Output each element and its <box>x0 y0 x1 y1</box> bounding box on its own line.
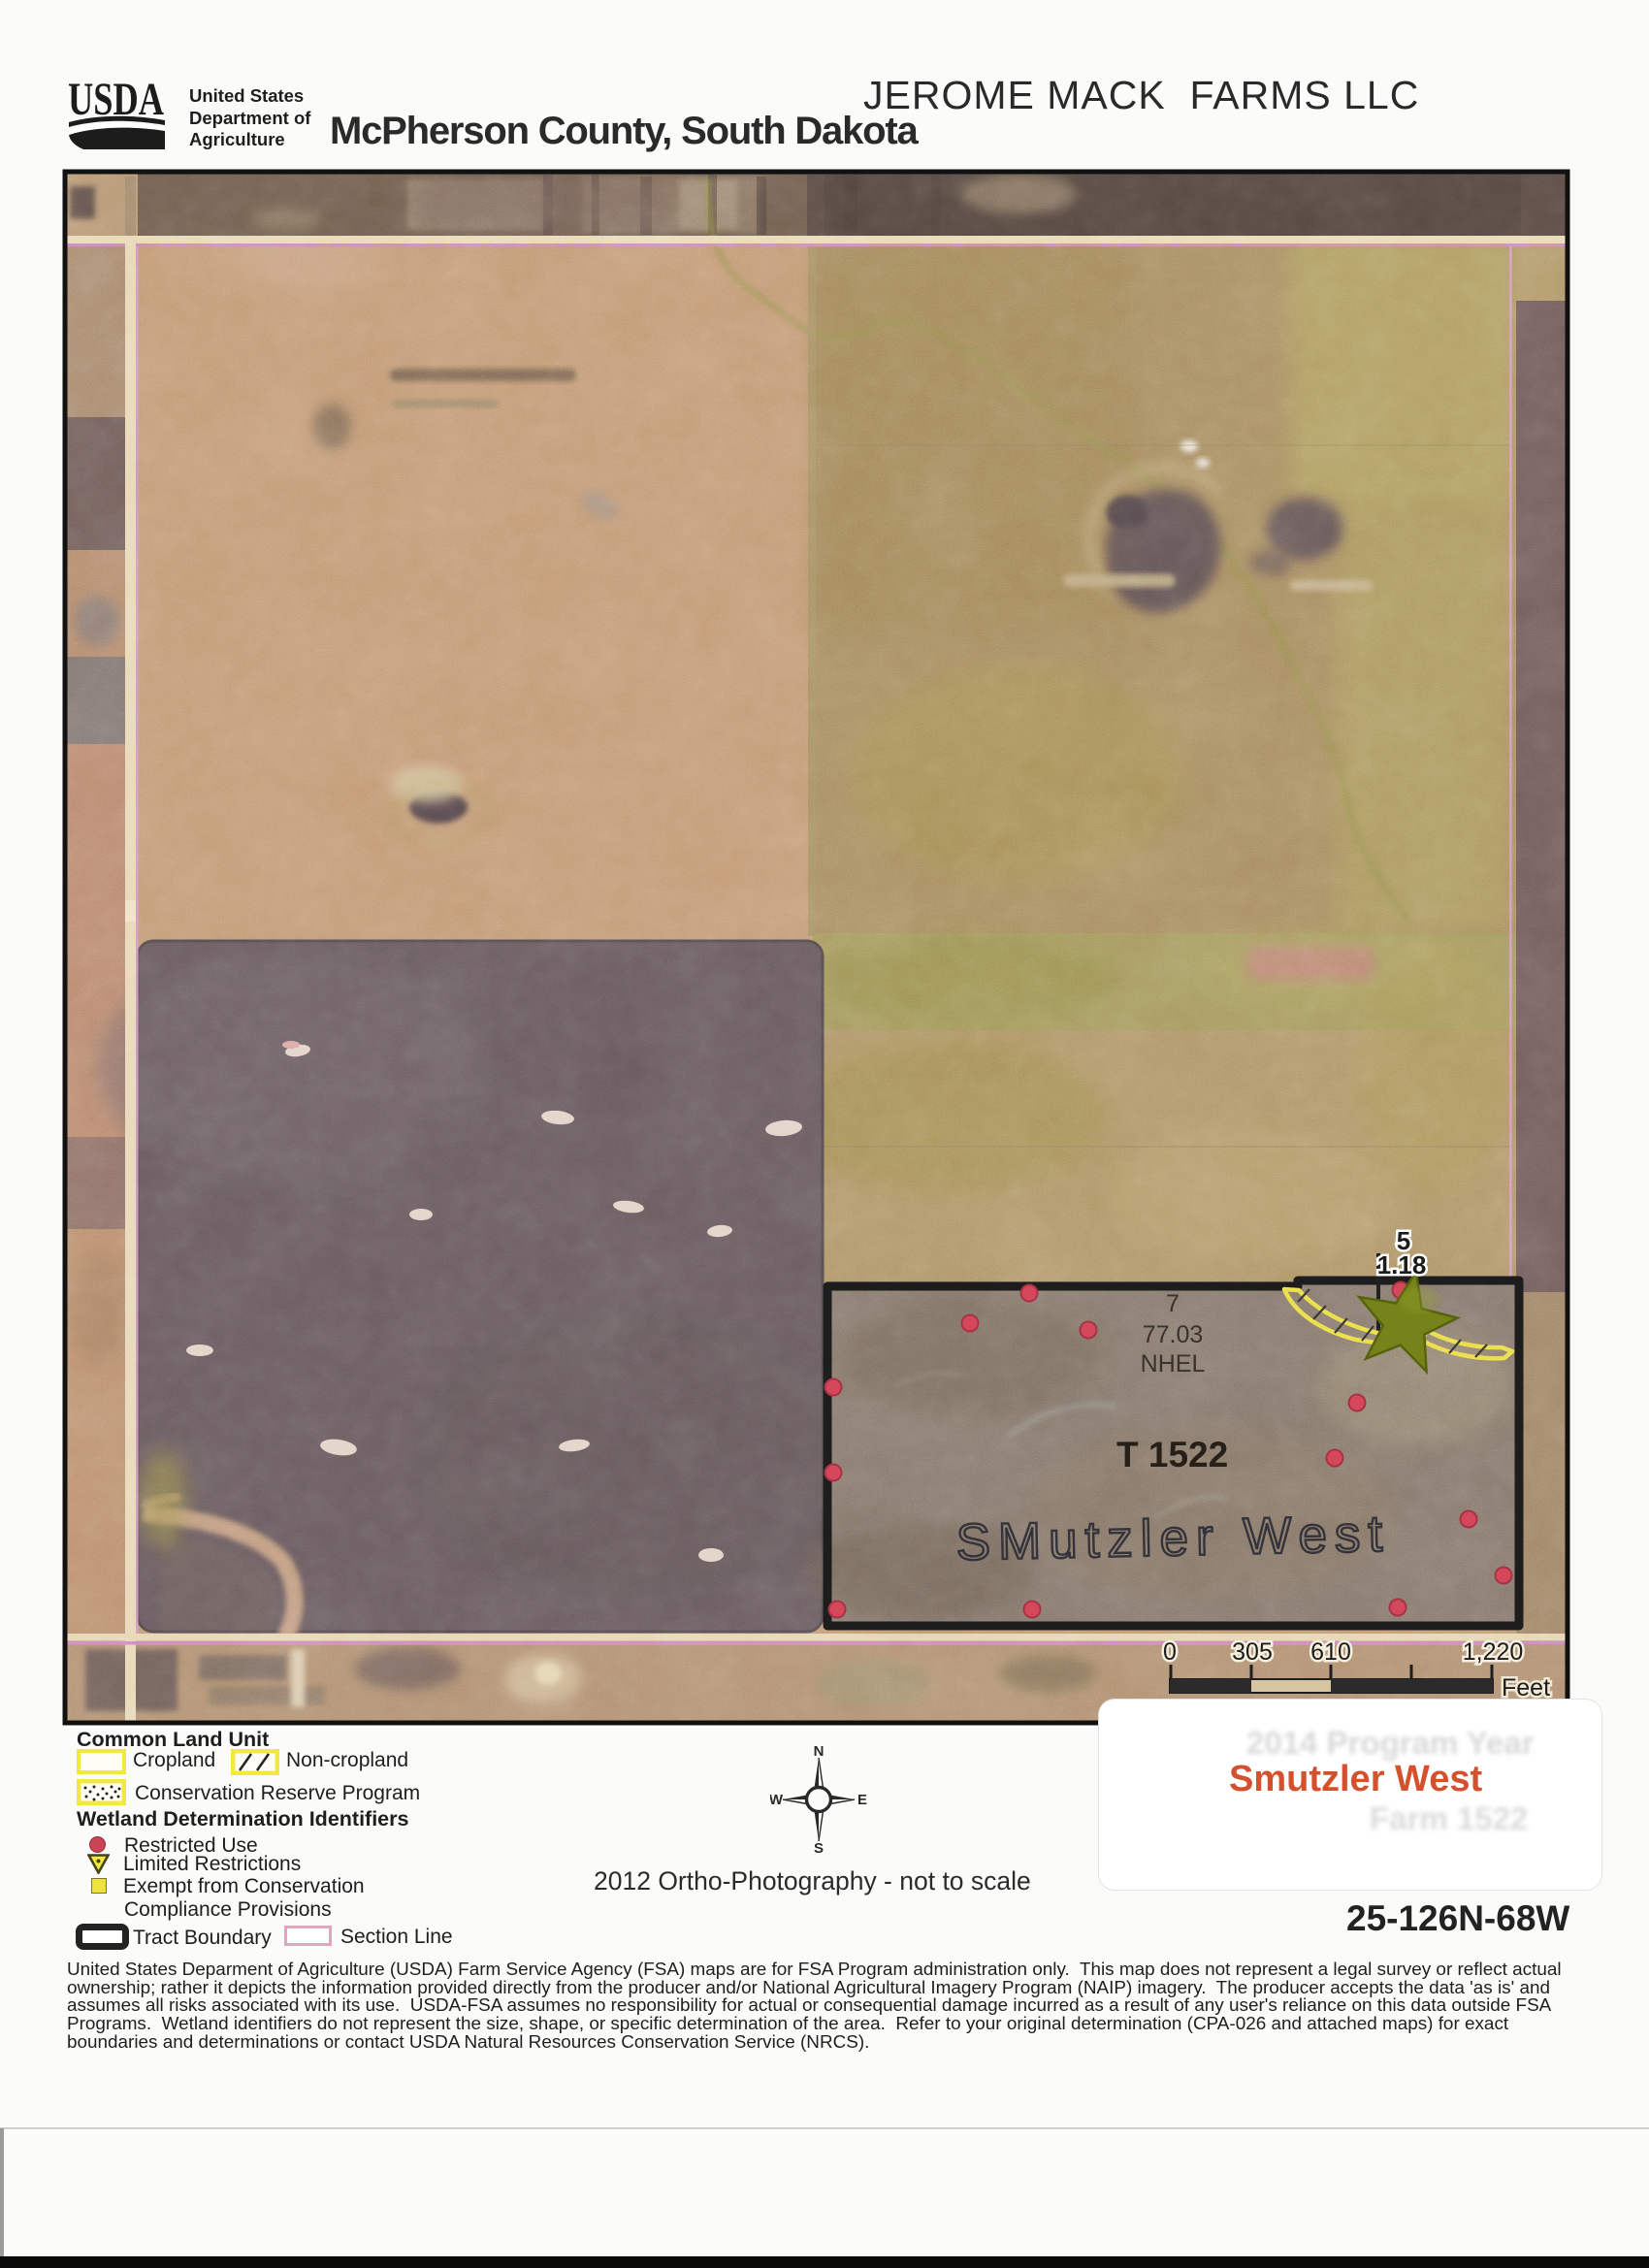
svg-text:S: S <box>814 1840 824 1853</box>
svg-text:NHEL: NHEL <box>1141 1350 1206 1377</box>
svg-text:E: E <box>857 1792 867 1808</box>
svg-text:N: N <box>814 1744 824 1760</box>
svg-text:7: 7 <box>1166 1290 1180 1317</box>
svg-text:305: 305 <box>1232 1638 1273 1666</box>
svg-text:Feet: Feet <box>1502 1674 1550 1701</box>
svg-text:SMutzler West: SMutzler West <box>955 1506 1391 1571</box>
svg-text:610: 610 <box>1310 1638 1351 1666</box>
svg-text:W: W <box>770 1792 784 1808</box>
svg-text:1,220: 1,220 <box>1463 1638 1524 1666</box>
svg-text:77.03: 77.03 <box>1143 1321 1204 1348</box>
svg-text:0: 0 <box>1163 1638 1177 1666</box>
svg-text:T 1522: T 1522 <box>1116 1435 1228 1474</box>
svg-text:1.18: 1.18 <box>1377 1250 1427 1280</box>
